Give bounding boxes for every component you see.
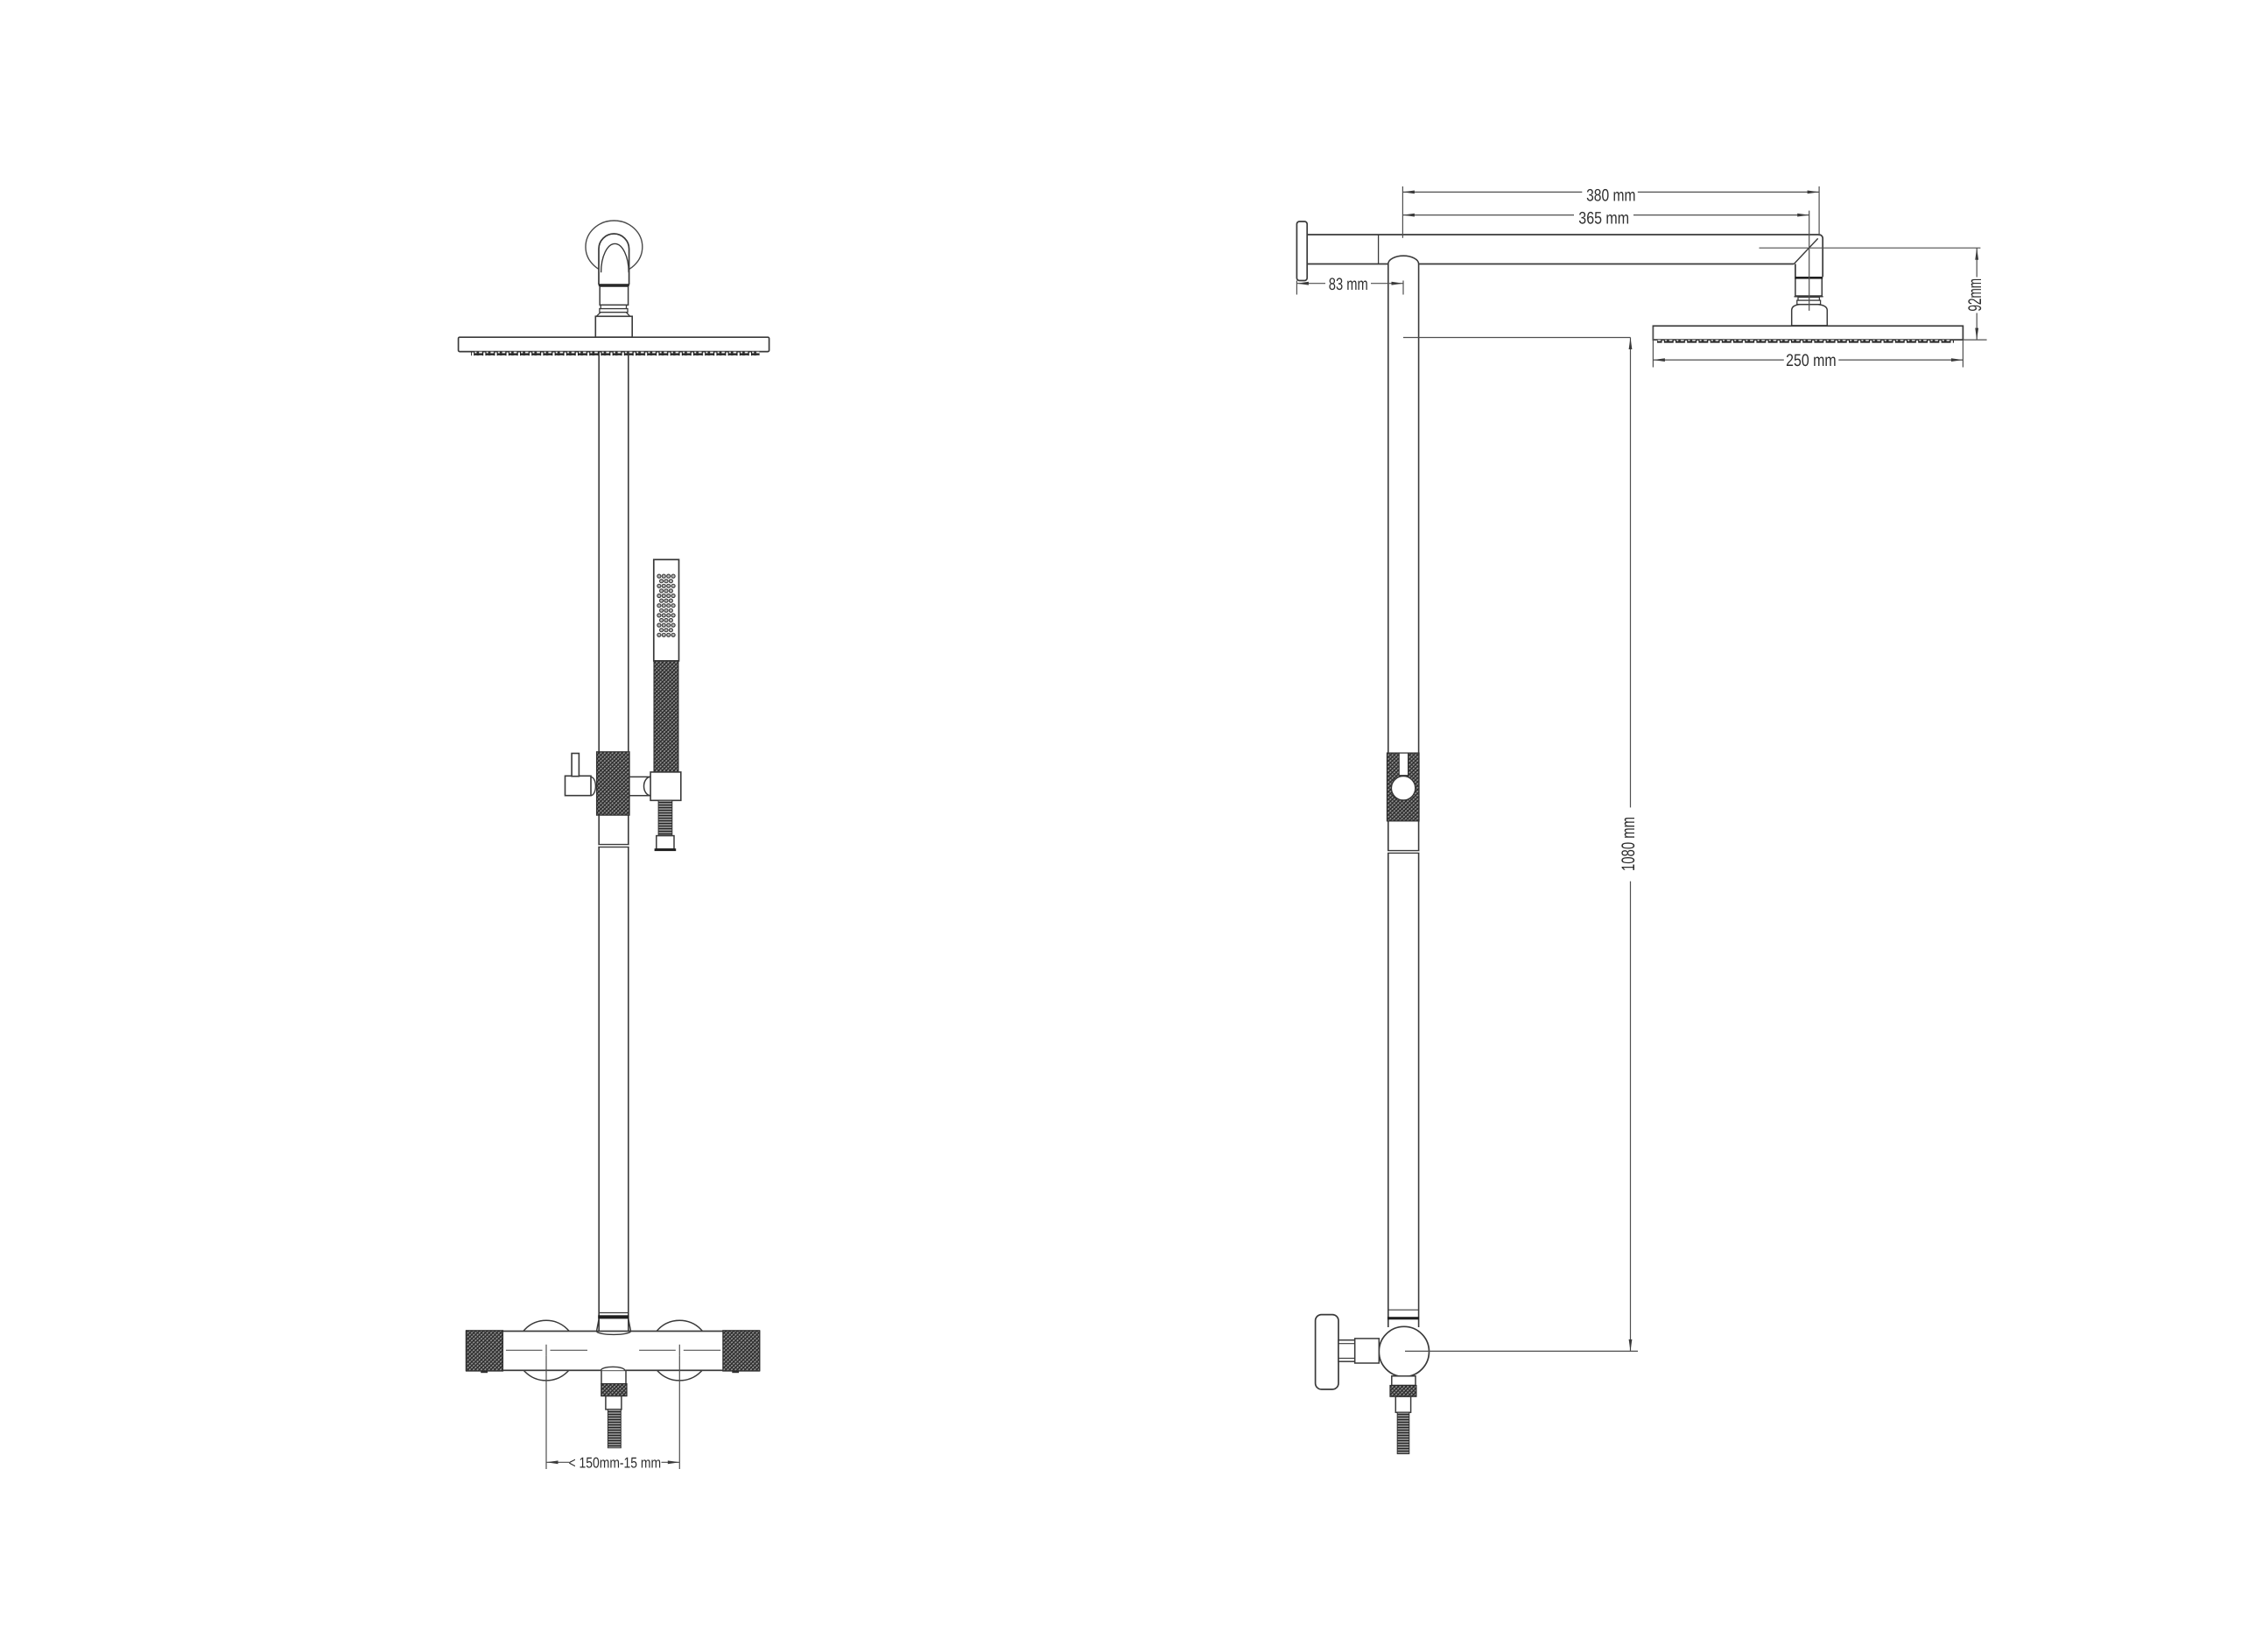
- svg-text:83 mm: 83 mm: [1329, 275, 1368, 294]
- svg-text:1080 mm: 1080 mm: [1619, 817, 1639, 871]
- svg-text:380 mm: 380 mm: [1586, 186, 1635, 206]
- svg-text:250 mm: 250 mm: [1786, 351, 1837, 370]
- svg-text:365 mm: 365 mm: [1578, 208, 1629, 228]
- svg-text:92mm: 92mm: [1965, 278, 1985, 312]
- svg-text:< 150mm-15 mm: < 150mm-15 mm: [569, 1454, 662, 1471]
